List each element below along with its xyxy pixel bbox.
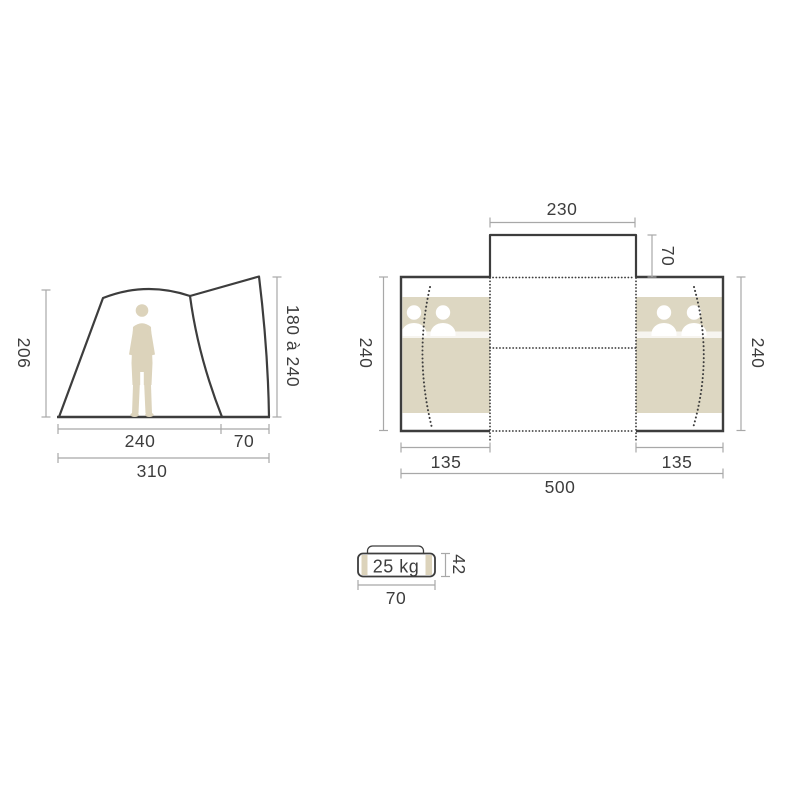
dim-label-porch-depth: 70 [658,246,678,266]
person-silhouette-icon [129,304,155,417]
dim-plan-porch-width: 230 [490,199,635,227]
dim-side-floor-segments: 240 70 [58,424,269,451]
dim-label-side-floor-main: 240 [125,431,156,451]
dim-plan-depth-left: 240 [356,277,388,431]
dim-plan-depth-right: 240 [737,277,768,431]
dim-plan-bedroom-right: 135 [636,443,723,473]
porch-outline [490,235,636,277]
tent-dimensions-diagram: 206 180 à 240 240 70 310 [0,0,800,800]
dim-label-side-height-left: 206 [14,338,34,369]
bag-strap-left [362,555,368,575]
bedroom-pillow-band-right [636,332,722,339]
dim-label-pack-width: 70 [386,588,406,608]
dim-label-side-height-right: 180 à 240 [283,305,303,387]
tent-inner-wall-line [190,296,222,417]
bag-strap-right [426,555,433,575]
bedroom-area-right [636,297,722,413]
dim-label-depth-right: 240 [748,338,768,369]
dim-plan-bedroom-left: 135 [401,443,490,473]
dim-pack-width: 70 [358,580,435,608]
dim-label-bedroom-left: 135 [431,452,462,472]
dim-label-side-floor-porch: 70 [234,431,254,451]
carry-bag-icon: 25 kg [358,546,435,577]
bag-weight-label: 25 kg [373,556,420,576]
dim-label-width-total: 500 [545,477,576,497]
tent-side-outline [59,277,269,418]
dim-plan-width-total: 500 [401,469,723,498]
top-view-diagram: 230 70 240 240 135 [356,199,768,497]
dim-side-floor-total: 310 [58,453,269,481]
dim-plan-porch-depth: 70 [648,235,678,277]
dim-pack-height: 42 [441,554,469,577]
dim-side-height-left: 206 [14,290,51,417]
side-view-diagram: 206 180 à 240 240 70 310 [14,277,303,482]
dim-label-side-floor-total: 310 [137,461,168,481]
dim-side-height-right: 180 à 240 [273,277,303,417]
dim-label-porch-width: 230 [547,199,578,219]
dim-label-depth-left: 240 [356,338,376,369]
dim-label-bedroom-right: 135 [662,452,693,472]
dim-label-pack-height: 42 [449,554,469,574]
pack-size-diagram: 25 kg 42 70 [358,546,469,608]
